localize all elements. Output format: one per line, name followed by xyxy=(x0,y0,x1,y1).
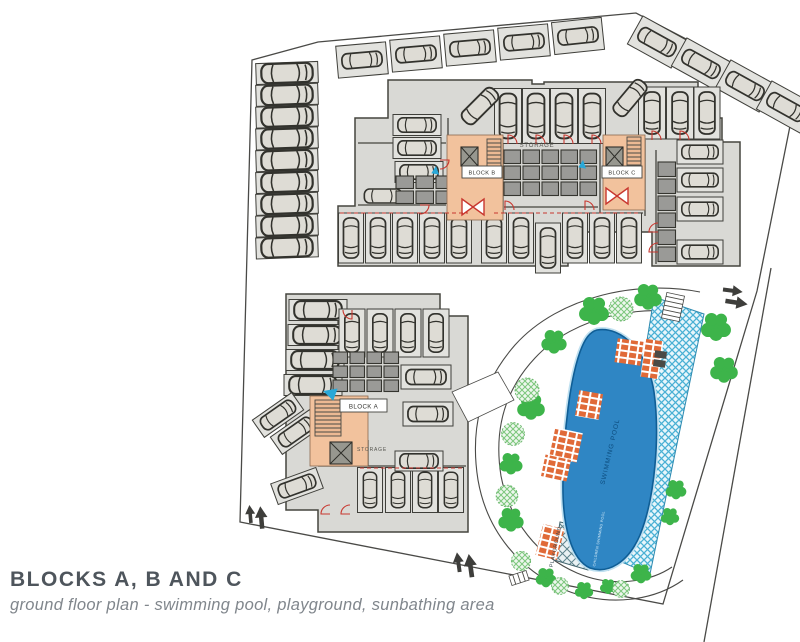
storage-cell xyxy=(542,166,559,180)
stairs-icon xyxy=(315,400,341,436)
car-icon xyxy=(418,472,431,507)
car-icon xyxy=(449,39,490,57)
storage-cell xyxy=(658,196,676,211)
parking-stall xyxy=(694,87,720,139)
car-icon xyxy=(429,314,443,352)
parking-stall xyxy=(439,468,464,513)
tree-icon xyxy=(498,508,523,532)
shrub-icon xyxy=(552,578,569,595)
storage-cell xyxy=(561,182,578,196)
parking-stall xyxy=(256,149,319,172)
car-icon xyxy=(370,218,385,258)
parking-stall xyxy=(393,115,441,136)
parking-stall xyxy=(413,468,438,513)
car-icon xyxy=(444,472,457,507)
tree-icon xyxy=(575,582,593,599)
car-icon xyxy=(682,202,718,216)
car-icon xyxy=(261,62,313,83)
storage-cell xyxy=(658,247,676,262)
plan-subtitle: ground floor plan - swimming pool, playg… xyxy=(10,596,495,615)
car-icon xyxy=(540,228,555,268)
parking-stall xyxy=(393,138,441,159)
parking-stall xyxy=(617,213,642,263)
parking-stall xyxy=(590,213,615,263)
car-icon xyxy=(261,84,313,105)
parking-stall xyxy=(420,213,445,263)
parking-stall xyxy=(551,17,604,54)
tree-icon xyxy=(579,297,609,325)
parking-stall xyxy=(482,213,507,263)
storage-cell xyxy=(580,182,597,196)
entrance-arrow-icon xyxy=(722,284,743,297)
parking-stall xyxy=(339,213,364,263)
car-icon xyxy=(400,454,438,468)
car-icon xyxy=(682,173,718,187)
car-icon xyxy=(424,218,439,258)
block-b-label: BLOCK B xyxy=(468,171,495,177)
car-icon xyxy=(294,301,342,319)
car-icon xyxy=(261,237,313,258)
car-icon xyxy=(397,218,412,258)
parking-stall xyxy=(289,300,347,321)
elevator-icon xyxy=(606,147,623,166)
shrub-icon xyxy=(511,551,530,570)
car-icon xyxy=(343,218,358,258)
car-icon xyxy=(513,218,528,258)
storage-cell xyxy=(350,380,365,392)
caption: BLOCKS A, B AND C ground floor plan - sw… xyxy=(10,568,495,615)
sunbed-grid-icon xyxy=(614,338,643,365)
parking-stall xyxy=(395,309,421,357)
car-icon xyxy=(584,94,601,139)
car-icon xyxy=(401,314,415,352)
sunbed-grid-icon xyxy=(575,390,603,420)
elevator-icon xyxy=(461,147,478,166)
storage-cell xyxy=(396,176,414,189)
parking-stall xyxy=(256,83,319,106)
shrub-icon xyxy=(502,423,525,446)
storage-a-label: STORAGE xyxy=(357,447,387,453)
block-c-label: BLOCK C xyxy=(608,171,635,177)
parking-stall xyxy=(256,170,319,193)
parking-stall xyxy=(393,213,418,263)
car-icon xyxy=(398,118,436,132)
shrub-icon xyxy=(609,297,633,321)
parking-stall xyxy=(444,30,497,66)
car-icon xyxy=(406,369,446,384)
car-icon xyxy=(682,245,718,259)
elevator-icon xyxy=(330,442,352,464)
storage-cell xyxy=(523,166,540,180)
storage-cell xyxy=(384,352,399,364)
car-icon xyxy=(261,128,313,149)
car-icon xyxy=(567,218,582,258)
tree-icon xyxy=(541,330,566,354)
parking-stall xyxy=(677,197,723,221)
storage-cell xyxy=(658,179,676,194)
block-a-label: BLOCK A xyxy=(349,404,379,411)
car-icon xyxy=(528,94,545,139)
storage-cell xyxy=(523,150,540,164)
car-icon xyxy=(341,51,382,69)
car-icon xyxy=(486,218,501,258)
storage-cell xyxy=(367,380,382,392)
car-icon xyxy=(391,472,404,507)
floor-plan-page: BLOCK B BLOCK C BLOCK A STORAGE STORAGE … xyxy=(0,0,800,642)
car-icon xyxy=(261,193,313,214)
car-icon xyxy=(699,92,715,134)
tree-icon xyxy=(710,357,738,383)
parking-stall xyxy=(256,105,319,128)
car-icon xyxy=(398,141,436,155)
parking-stall xyxy=(256,192,319,215)
storage-cell xyxy=(542,182,559,196)
car-icon xyxy=(395,45,436,63)
storage-cell xyxy=(333,366,348,378)
tree-icon xyxy=(666,480,687,499)
car-icon xyxy=(621,218,636,258)
storage-cell xyxy=(504,150,521,164)
car-icon xyxy=(261,215,313,236)
parking-stall xyxy=(677,240,723,264)
car-icon xyxy=(293,326,341,344)
car-icon xyxy=(557,26,598,45)
car-icon xyxy=(261,106,313,127)
parking-stall xyxy=(447,213,472,263)
car-icon xyxy=(644,92,660,134)
storage-cell xyxy=(658,162,676,177)
car-icon xyxy=(682,145,718,159)
storage-cell xyxy=(367,352,382,364)
storage-cell xyxy=(561,166,578,180)
parking-stall xyxy=(256,236,319,259)
storage-cell xyxy=(384,366,399,378)
storage-cell xyxy=(523,182,540,196)
car-icon xyxy=(594,218,609,258)
parking-stall xyxy=(677,140,723,164)
tree-icon xyxy=(661,508,679,525)
storage-cell xyxy=(350,352,365,364)
entrance-arrow-icon xyxy=(244,505,256,524)
parking-stall xyxy=(423,309,449,357)
storage-cell xyxy=(367,366,382,378)
storage-cell xyxy=(416,176,434,189)
parking-stall xyxy=(358,468,383,513)
storage-cell xyxy=(416,191,434,204)
storage-cell xyxy=(504,182,521,196)
car-icon xyxy=(672,92,688,134)
car-icon xyxy=(261,150,313,171)
car-icon xyxy=(500,94,517,139)
parking-stall xyxy=(256,127,319,150)
storage-cell xyxy=(504,166,521,180)
storage-cell xyxy=(658,230,676,245)
shrub-icon xyxy=(613,581,630,598)
storage-cell xyxy=(396,191,414,204)
parking-stall xyxy=(256,214,319,237)
parking-stall xyxy=(367,309,393,357)
car-icon xyxy=(261,171,313,192)
parking-stall xyxy=(386,468,411,513)
storage-cell xyxy=(384,380,399,392)
car-icon xyxy=(408,406,448,421)
car-icon xyxy=(503,33,544,51)
tree-icon xyxy=(500,453,523,475)
shrub-icon xyxy=(515,378,539,402)
parking-stall xyxy=(366,213,391,263)
parking-stall xyxy=(288,325,346,346)
site-plan: BLOCK B BLOCK C BLOCK A STORAGE STORAGE … xyxy=(0,0,800,642)
parking-stall xyxy=(509,213,534,263)
storage-cell xyxy=(658,213,676,228)
parking-stall xyxy=(536,223,561,273)
car-icon xyxy=(363,472,376,507)
shrub-icon xyxy=(496,485,518,507)
storage-cell xyxy=(350,366,365,378)
storage-cell xyxy=(542,150,559,164)
parking-stall xyxy=(336,42,389,78)
storage-cell xyxy=(580,166,597,180)
parking-stall xyxy=(256,61,319,84)
storage-cell xyxy=(333,352,348,364)
entrance-arrow-icon xyxy=(724,295,748,311)
parking-stall xyxy=(403,402,453,426)
deck-steps-icon xyxy=(509,570,529,585)
parking-stall xyxy=(401,365,451,389)
car-icon xyxy=(556,94,573,139)
storage-cell xyxy=(561,150,578,164)
car-icon xyxy=(373,314,387,352)
parking-stall xyxy=(390,36,443,72)
car-icon xyxy=(451,218,466,258)
car-icon xyxy=(345,314,359,352)
car-icon xyxy=(291,351,339,369)
parking-stall xyxy=(563,213,588,263)
storage-bc-label: STORAGE xyxy=(520,143,555,149)
tree-icon xyxy=(701,313,731,341)
parking-stall xyxy=(498,24,551,60)
plan-title: BLOCKS A, B AND C xyxy=(10,568,495,592)
parking-stall xyxy=(677,168,723,192)
